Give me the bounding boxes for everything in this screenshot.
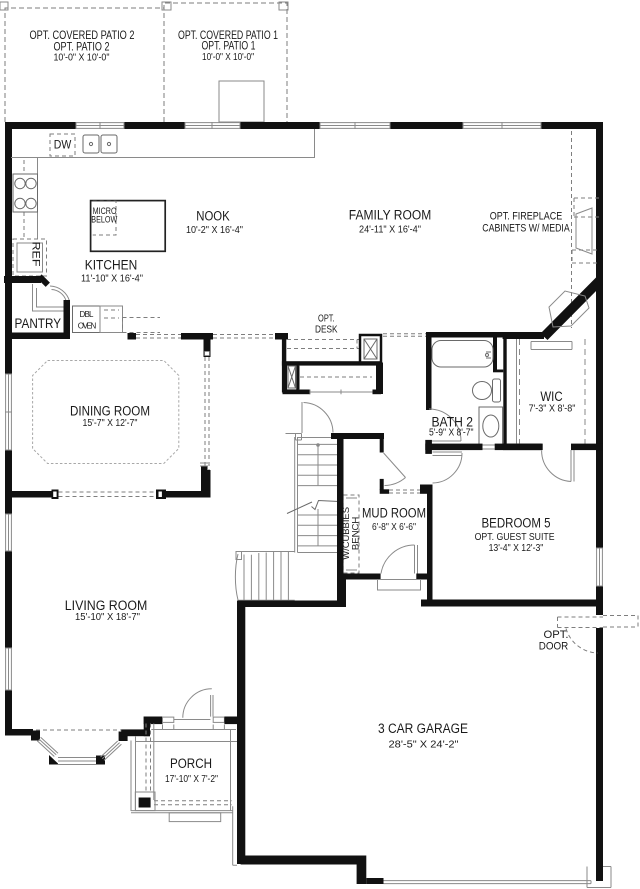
svg-text:WIC: WIC — [540, 389, 563, 404]
svg-text:17'-10" X 7'-2": 17'-10" X 7'-2" — [165, 774, 218, 785]
svg-text:REF: REF — [30, 242, 42, 267]
svg-text:5'-9" X 8'-7": 5'-9" X 8'-7" — [429, 428, 474, 439]
svg-text:10'-0" X 10'-0": 10'-0" X 10'-0" — [202, 52, 254, 63]
svg-text:28'-5" X 24'-2": 28'-5" X 24'-2" — [389, 740, 459, 751]
svg-text:OPT.: OPT. — [318, 314, 335, 325]
svg-text:KITCHEN: KITCHEN — [85, 258, 138, 273]
svg-text:DW: DW — [54, 138, 72, 152]
svg-text:PANTRY: PANTRY — [15, 316, 62, 331]
svg-text:OPT. PATIO 1: OPT. PATIO 1 — [202, 41, 256, 53]
svg-text:10'-2" X 16'-4": 10'-2" X 16'-4" — [186, 225, 243, 236]
svg-text:OPT. GUEST SUITE: OPT. GUEST SUITE — [475, 531, 555, 543]
svg-text:DINING ROOM: DINING ROOM — [70, 404, 150, 419]
svg-text:11'-10" X 16'-4": 11'-10" X 16'-4" — [81, 274, 143, 285]
svg-text:W/CUBBIES: W/CUBBIES — [341, 507, 352, 560]
svg-text:MUD ROOM: MUD ROOM — [362, 506, 426, 521]
svg-text:FAMILY ROOM: FAMILY ROOM — [349, 208, 432, 223]
svg-text:10'-0" X 10'-0": 10'-0" X 10'-0" — [54, 53, 110, 64]
svg-text:6'-8" X 6'-6": 6'-8" X 6'-6" — [372, 522, 416, 533]
svg-text:BENCH: BENCH — [351, 517, 362, 551]
svg-text:13'-4" X 12'-3": 13'-4" X 12'-3" — [489, 543, 544, 554]
svg-text:OPT. COVERED PATIO 2: OPT. COVERED PATIO 2 — [30, 30, 135, 42]
svg-text:OPT. FIREPLACE: OPT. FIREPLACE — [490, 211, 563, 223]
svg-text:3 CAR GARAGE: 3 CAR GARAGE — [378, 721, 468, 736]
svg-text:PORCH: PORCH — [170, 756, 212, 771]
svg-text:LIVING ROOM: LIVING ROOM — [65, 598, 148, 613]
svg-text:24'-11" X 16'-4": 24'-11" X 16'-4" — [359, 224, 421, 235]
svg-text:DOOR: DOOR — [539, 641, 569, 653]
svg-text:CABINETS W/ MEDIA: CABINETS W/ MEDIA — [482, 222, 570, 234]
svg-text:OPT.: OPT. — [544, 629, 569, 641]
svg-text:15'-10" X 18'-7": 15'-10" X 18'-7" — [75, 612, 140, 623]
svg-text:NOOK: NOOK — [196, 208, 230, 223]
svg-text:BEDROOM 5: BEDROOM 5 — [482, 515, 551, 530]
svg-text:7'-3" X 8'-8": 7'-3" X 8'-8" — [529, 403, 576, 414]
svg-text:DBL: DBL — [80, 310, 95, 319]
svg-text:OVEN: OVEN — [78, 322, 97, 331]
svg-text:15'-7" X 12'-7": 15'-7" X 12'-7" — [83, 418, 138, 429]
svg-text:DESK: DESK — [315, 324, 338, 335]
svg-text:BELOW: BELOW — [91, 214, 117, 224]
